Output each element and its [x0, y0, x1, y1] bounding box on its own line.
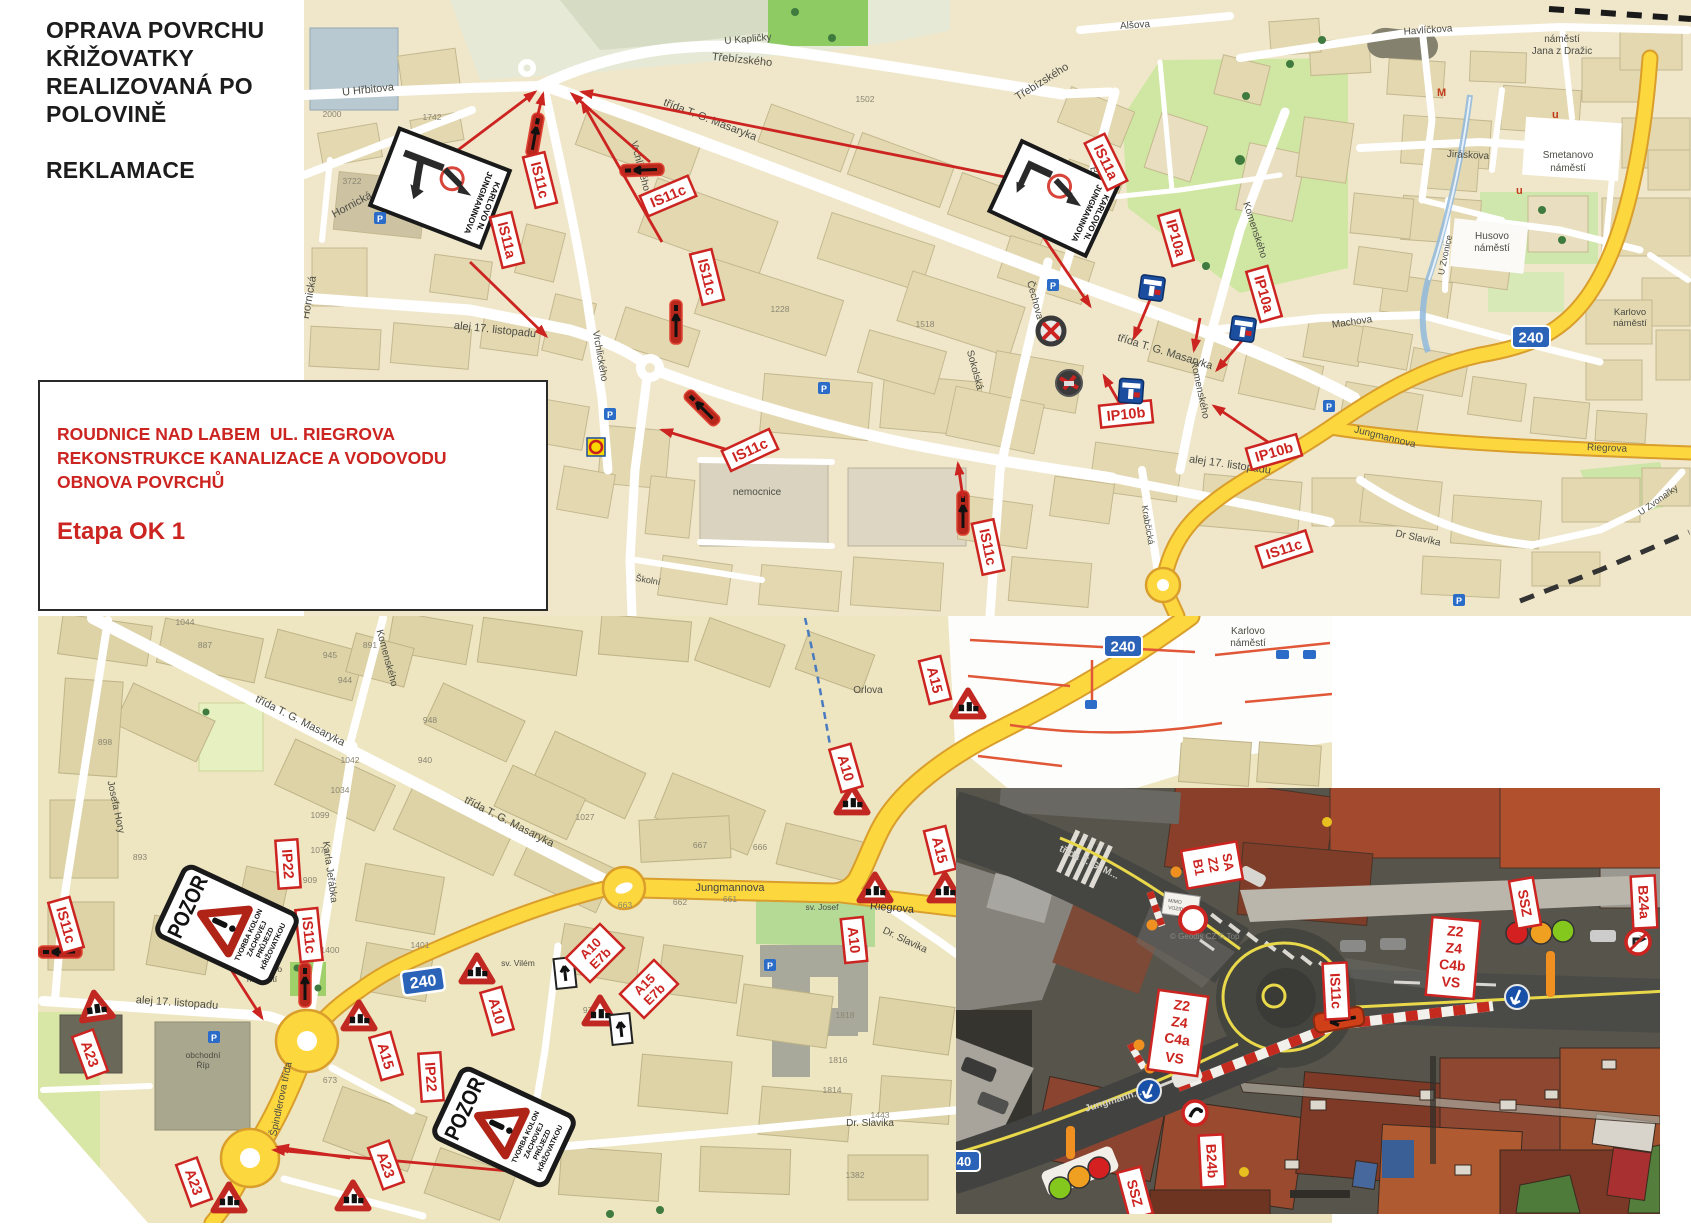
svg-text:Orlova: Orlova [853, 685, 883, 696]
svg-text:663: 663 [618, 900, 632, 910]
svg-text:673: 673 [323, 1075, 337, 1085]
svg-text:1382: 1382 [846, 1170, 865, 1180]
svg-text:B1: B1 [1190, 858, 1208, 877]
svg-text:A10: A10 [844, 926, 863, 954]
svg-text:1401: 1401 [411, 940, 430, 950]
svg-text:u: u [1516, 185, 1523, 197]
svg-text:666: 666 [753, 842, 767, 852]
svg-text:2000: 2000 [323, 109, 342, 119]
svg-text:Smetanovo: Smetanovo [1543, 150, 1594, 161]
svg-text:909: 909 [303, 875, 317, 885]
svg-text:1042: 1042 [341, 755, 360, 765]
svg-text:1400: 1400 [321, 945, 340, 955]
svg-text:náměstí: náměstí [1230, 638, 1266, 649]
svg-text:1502: 1502 [856, 94, 875, 104]
svg-text:1027: 1027 [576, 812, 595, 822]
svg-text:1818: 1818 [836, 1010, 855, 1020]
svg-text:661: 661 [723, 894, 737, 904]
svg-text:1816: 1816 [829, 1055, 848, 1065]
svg-text:C4b: C4b [1439, 956, 1467, 974]
svg-text:240: 240 [1110, 639, 1135, 656]
svg-text:náměstí: náměstí [1474, 243, 1510, 254]
svg-text:1044: 1044 [176, 617, 195, 627]
svg-text:Karlovo: Karlovo [1614, 307, 1646, 318]
svg-text:945: 945 [323, 650, 337, 660]
svg-text:Z4: Z4 [1445, 939, 1463, 956]
svg-text:940: 940 [418, 755, 432, 765]
svg-text:1814: 1814 [823, 1085, 842, 1095]
svg-text:1443: 1443 [871, 1110, 890, 1120]
svg-text:© Geodis CZ © Top: © Geodis CZ © Top [1170, 932, 1240, 941]
svg-text:1034: 1034 [331, 785, 350, 795]
svg-text:1518: 1518 [916, 319, 935, 329]
svg-text:Jana z Dražic: Jana z Dražic [1532, 46, 1593, 57]
svg-text:IS11c: IS11c [1327, 973, 1345, 1010]
svg-text:1074: 1074 [311, 845, 330, 855]
svg-text:náměstí: náměstí [1613, 318, 1647, 329]
svg-text:sv. Vilém: sv. Vilém [501, 958, 535, 968]
svg-text:Z2: Z2 [1173, 996, 1192, 1014]
svg-text:Karlovo: Karlovo [1231, 626, 1265, 637]
svg-text:948: 948 [423, 715, 437, 725]
svg-text:IP22: IP22 [278, 849, 296, 880]
svg-text:240: 240 [1518, 330, 1543, 347]
svg-text:Z4: Z4 [1170, 1013, 1189, 1031]
svg-text:Jungmannova: Jungmannova [695, 882, 765, 894]
svg-text:nemocnice: nemocnice [733, 487, 782, 498]
svg-text:887: 887 [198, 640, 212, 650]
svg-text:B24b: B24b [1203, 1143, 1221, 1178]
svg-text:1742: 1742 [423, 112, 442, 122]
svg-text:1228: 1228 [771, 304, 790, 314]
svg-text:IP22: IP22 [421, 1062, 439, 1093]
svg-text:sv. Josef: sv. Josef [806, 902, 840, 912]
svg-text:891: 891 [363, 640, 377, 650]
svg-text:B24a: B24a [1635, 885, 1653, 919]
svg-text:Riegrova: Riegrova [1587, 442, 1628, 454]
svg-text:VS: VS [1164, 1049, 1185, 1067]
svg-text:40: 40 [957, 1154, 971, 1169]
svg-text:obchodní: obchodní [186, 1050, 222, 1060]
svg-text:898: 898 [98, 737, 112, 747]
svg-text:náměstí: náměstí [1544, 34, 1580, 45]
svg-text:662: 662 [673, 897, 687, 907]
svg-text:944: 944 [338, 675, 352, 685]
svg-text:Jiráskova: Jiráskova [1447, 149, 1490, 162]
svg-text:u: u [1552, 109, 1559, 121]
svg-text:Říp: Říp [196, 1060, 210, 1070]
svg-text:Alšova: Alšova [1120, 19, 1151, 32]
svg-text:3722: 3722 [343, 176, 362, 186]
svg-text:893: 893 [133, 852, 147, 862]
svg-text:667: 667 [693, 840, 707, 850]
svg-text:Z2: Z2 [1447, 922, 1465, 939]
svg-text:M: M [1437, 87, 1446, 99]
svg-text:náměstí: náměstí [1550, 163, 1586, 174]
svg-text:Husovo: Husovo [1475, 231, 1509, 242]
svg-text:1099: 1099 [311, 810, 330, 820]
svg-text:VS: VS [1441, 973, 1461, 991]
